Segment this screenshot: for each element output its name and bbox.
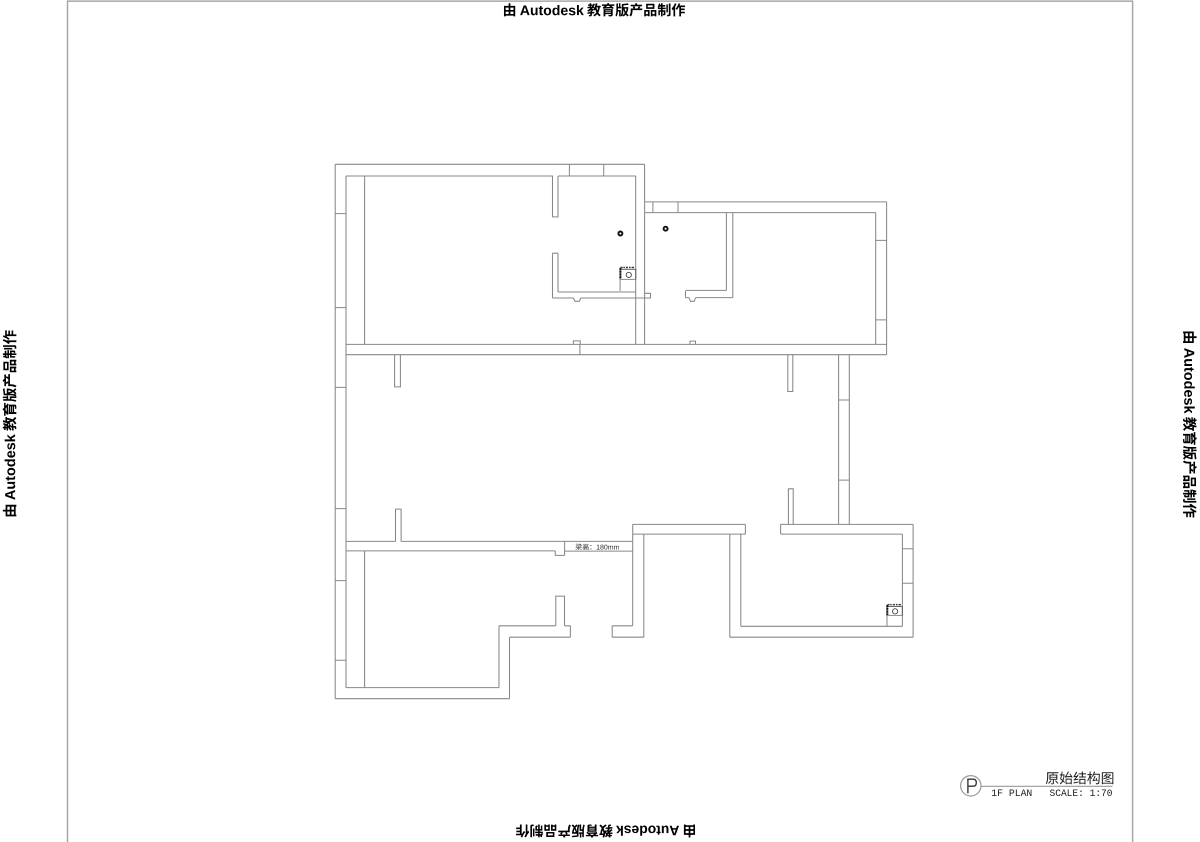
svg-text:1F PLAN: 1F PLAN bbox=[991, 788, 1032, 800]
svg-text:SCALE: 1:70: SCALE: 1:70 bbox=[1050, 788, 1113, 800]
